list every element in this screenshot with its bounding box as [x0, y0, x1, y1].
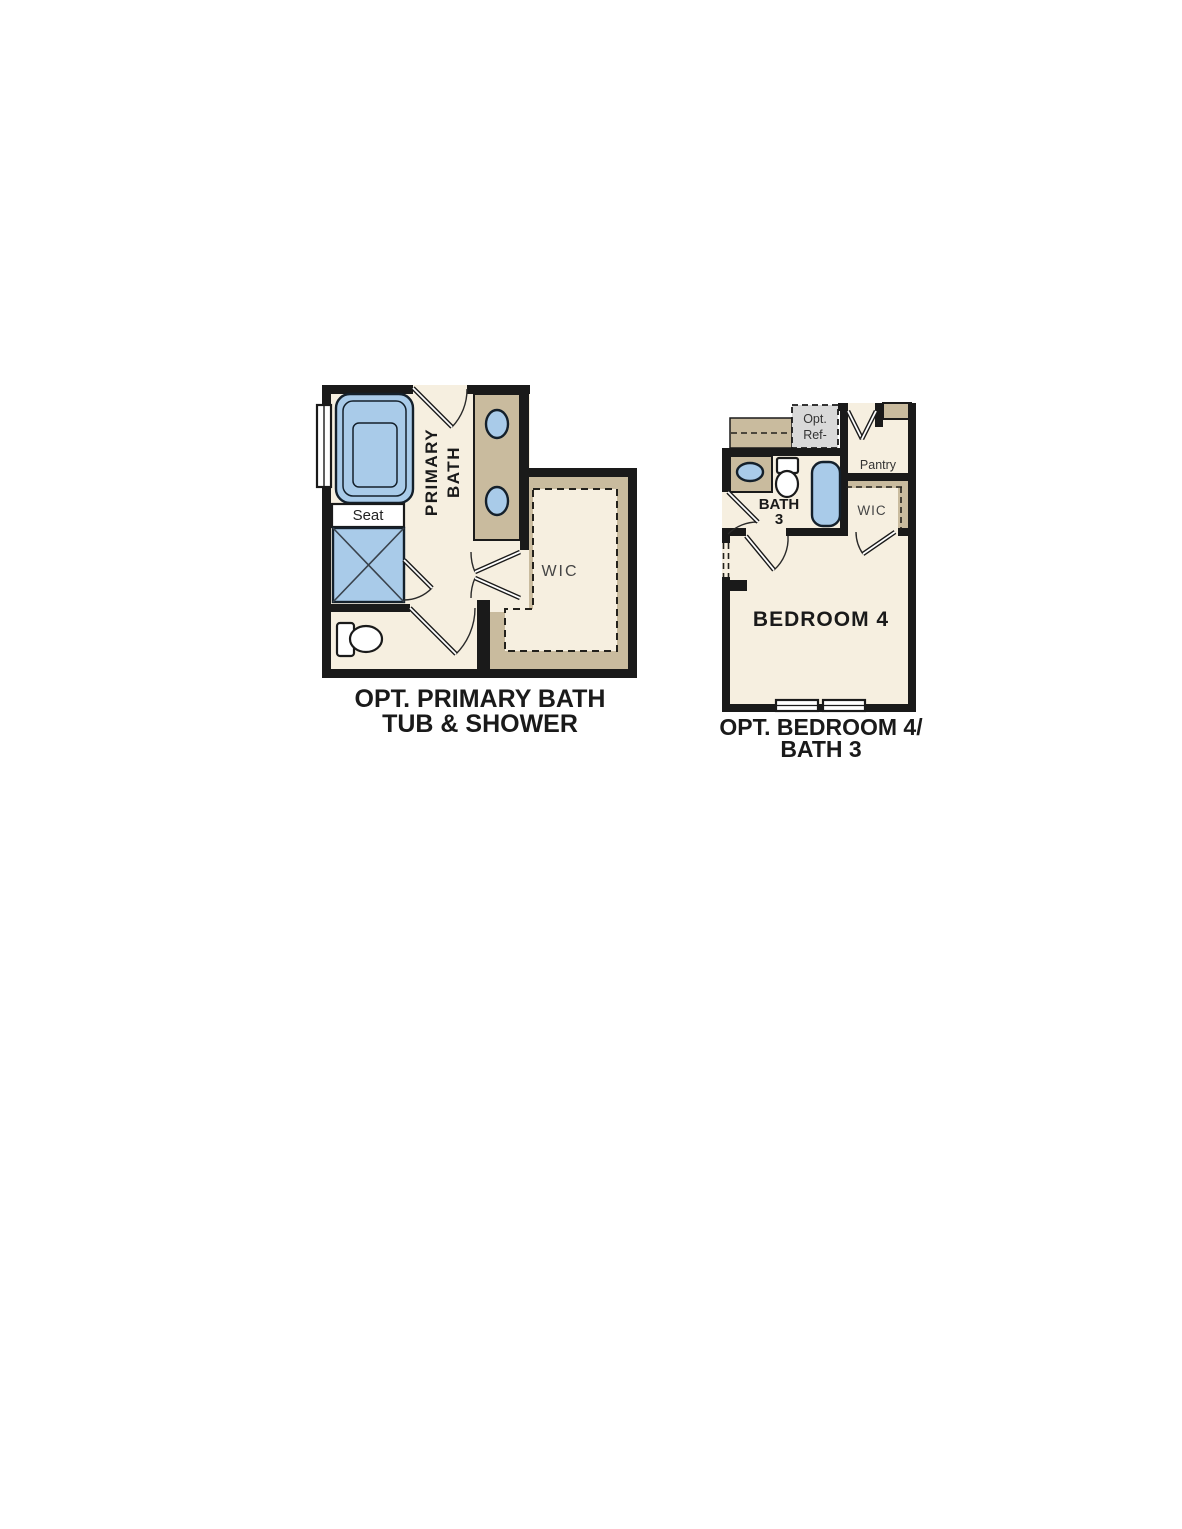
- wic-label: WIC: [541, 563, 578, 580]
- bedroom4-plan: Opt. Ref-: [705, 395, 940, 765]
- bedroom4-title-line2: BATH 3: [780, 736, 861, 762]
- wall-toilet-room-right: [477, 600, 490, 669]
- wic2-label: WIC: [857, 503, 886, 518]
- primary-bath-plan: Seat PRIMARY BATH WIC OPT.: [305, 375, 655, 750]
- primary-bath-title-line1: OPT. PRIMARY BATH: [355, 685, 606, 713]
- wall-top-left-segment: [322, 385, 413, 394]
- opt-counter: [730, 418, 792, 448]
- bathtub: [336, 394, 413, 503]
- wall-under-pantry: [841, 473, 916, 481]
- wall-vanity-right: [520, 385, 529, 550]
- opt-ref-box: Opt. Ref-: [792, 405, 838, 448]
- wall-bottom: [322, 669, 637, 678]
- wall-wic-right: [628, 468, 637, 678]
- svg-text:Opt.: Opt.: [803, 412, 827, 426]
- wall-left-lower: [722, 577, 730, 712]
- wall-toilet-room-top: [322, 604, 410, 612]
- sink-top: [486, 410, 508, 438]
- window-bottom-right: [823, 700, 865, 711]
- shower-pan: [333, 528, 404, 602]
- bath3-tub: [812, 462, 840, 526]
- wall-bath3-top: [722, 448, 848, 456]
- svg-text:PRIMARY: PRIMARY: [422, 428, 441, 516]
- bath3-sink: [737, 463, 763, 481]
- pantry-label: Pantry: [860, 458, 897, 472]
- wall-bath3-bedroom-right: [786, 528, 855, 536]
- wall-wic-top: [520, 468, 637, 477]
- seat-label: Seat: [353, 507, 385, 524]
- wall-right: [908, 403, 916, 712]
- bath3-label-line2: 3: [775, 511, 783, 528]
- wall-left-upper: [722, 448, 730, 492]
- wall-pantry-left: [840, 403, 848, 536]
- page: { "page": { "background": "#ffffff" }, "…: [0, 0, 1182, 1529]
- svg-text:BATH: BATH: [444, 446, 463, 498]
- bedroom4-label: BEDROOM 4: [753, 608, 889, 631]
- sink-bottom: [486, 487, 508, 515]
- wall-bedroom-stub: [722, 580, 747, 591]
- window-bottom-left: [776, 700, 818, 711]
- primary-bath-title-line2: TUB & SHOWER: [382, 710, 578, 738]
- svg-text:Ref-: Ref-: [803, 428, 827, 442]
- wall-wic-bottom-right: [895, 528, 916, 536]
- pantry-shelf-block: [883, 403, 911, 419]
- bath3-toilet: [776, 458, 798, 497]
